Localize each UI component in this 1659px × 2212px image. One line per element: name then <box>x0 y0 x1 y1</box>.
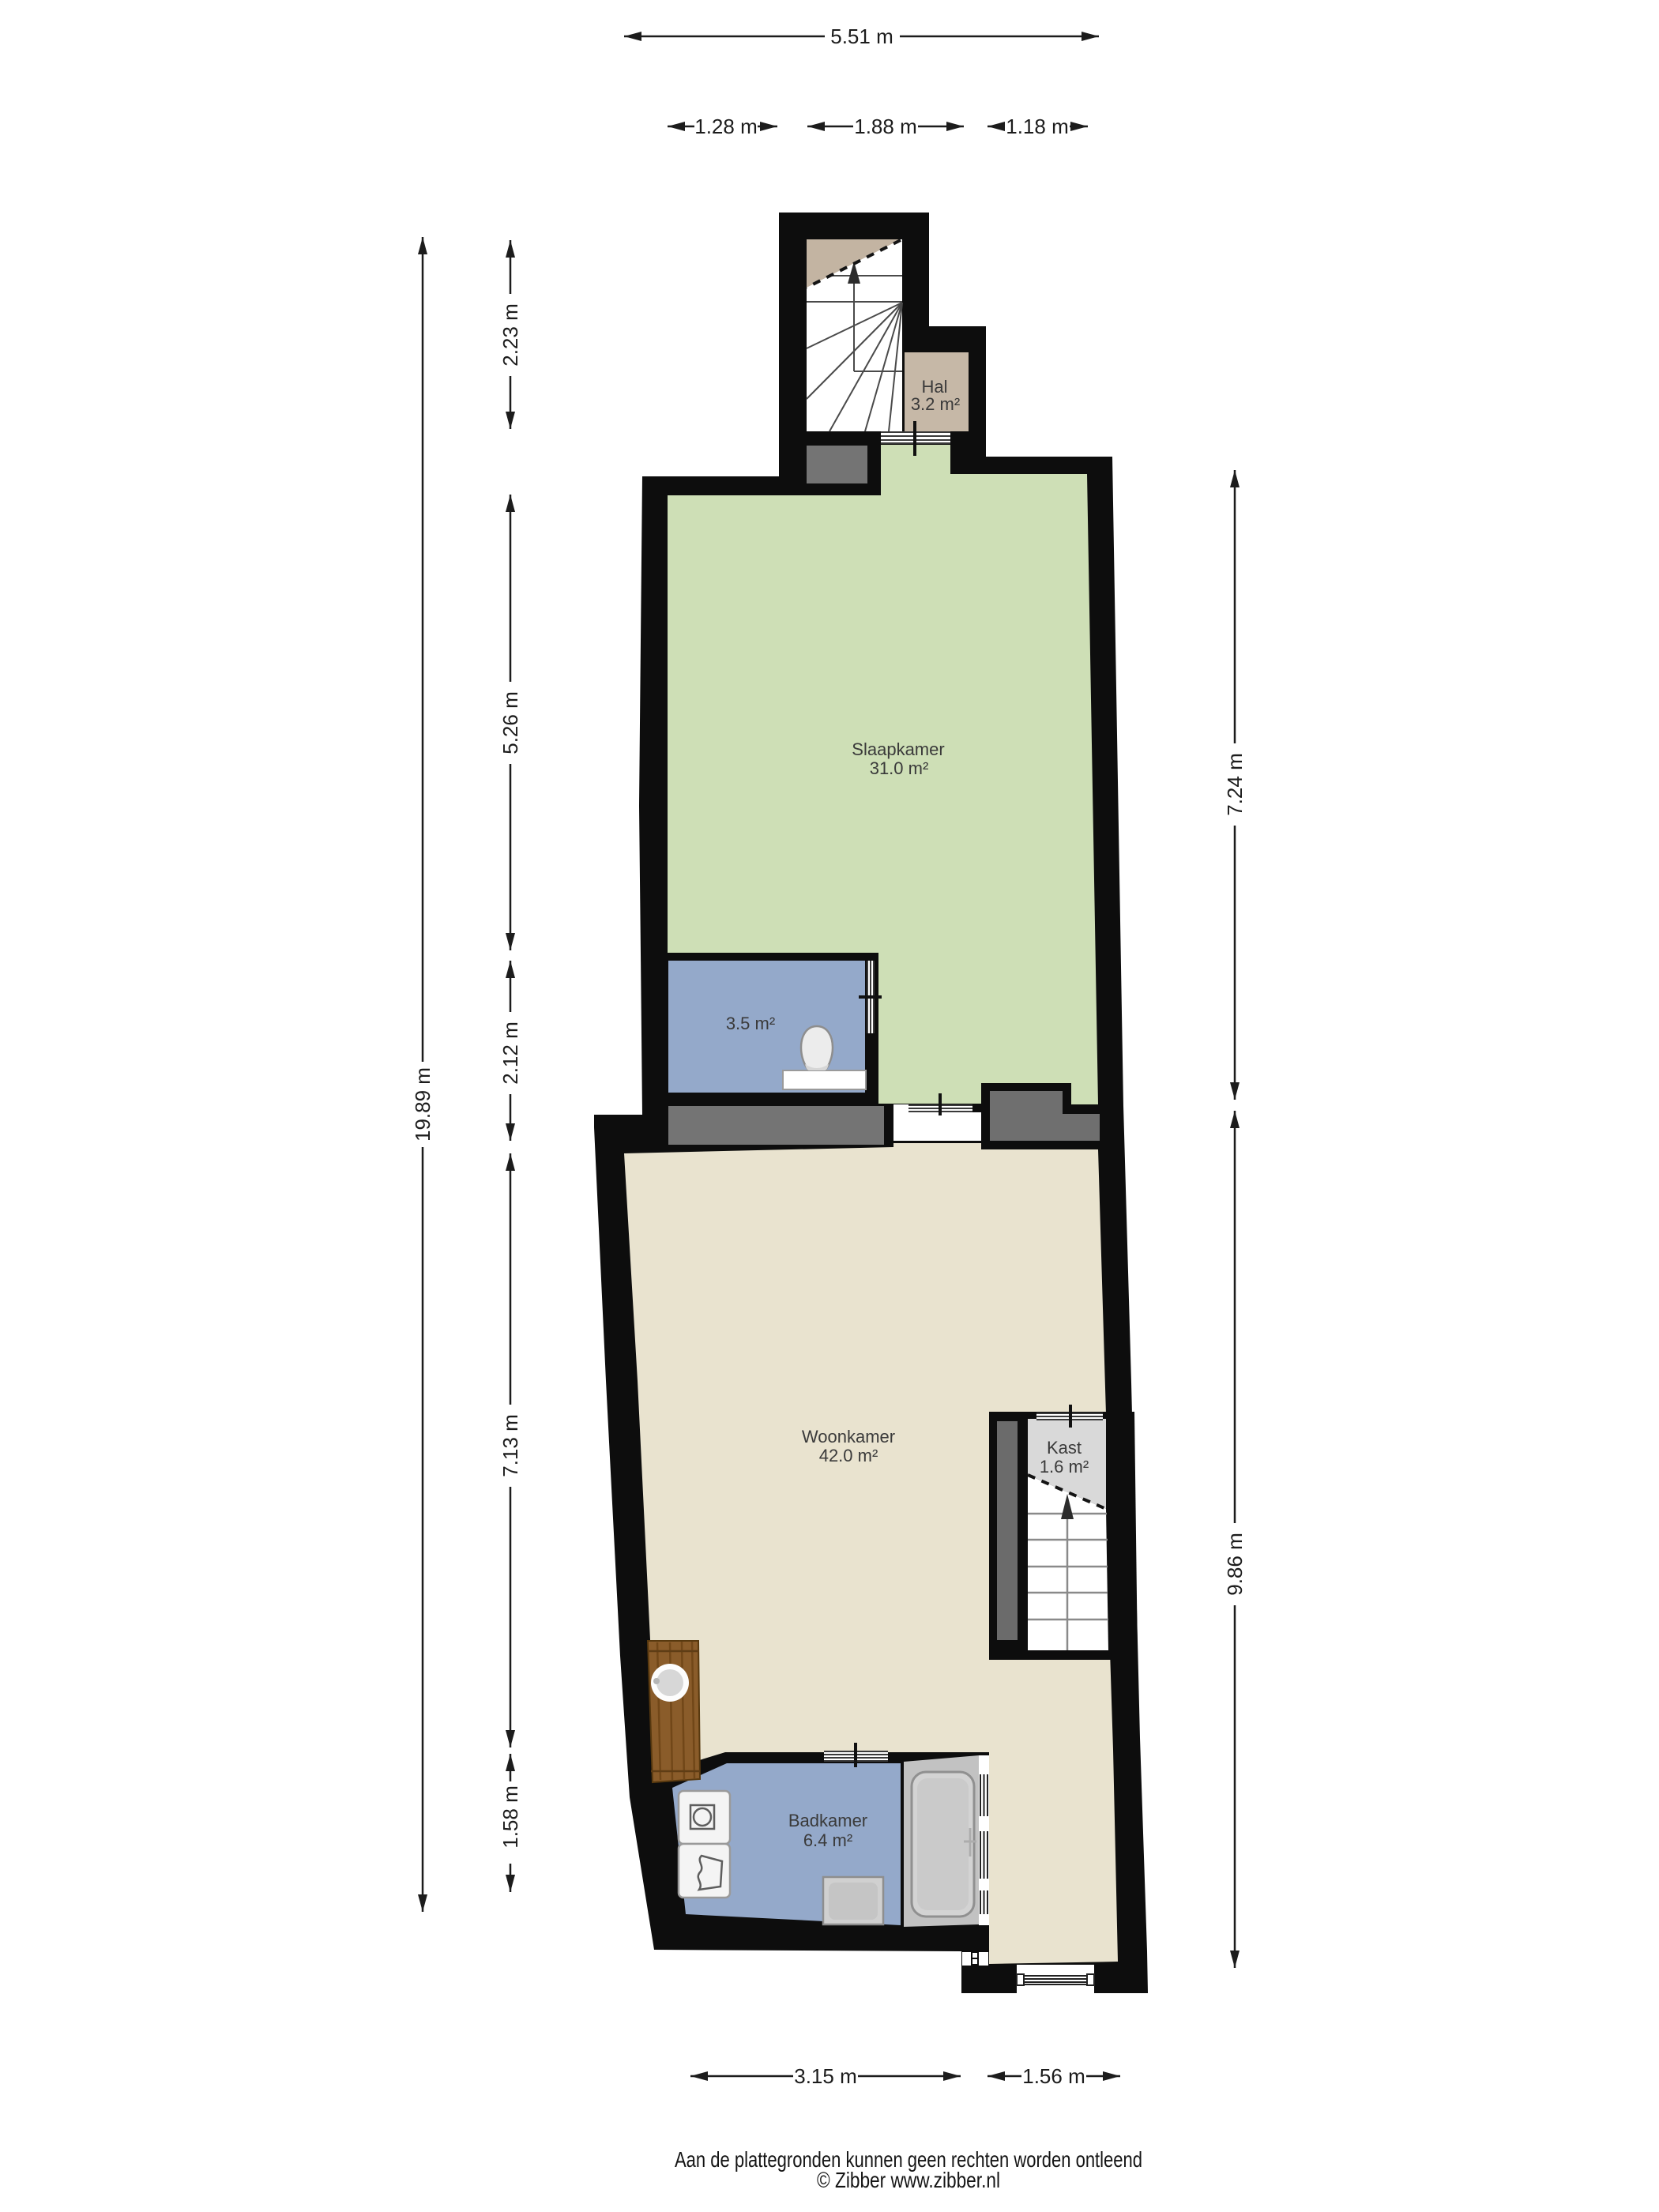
svg-text:1.18 m: 1.18 m <box>1006 115 1069 138</box>
svg-text:Kast: Kast <box>1047 1438 1082 1458</box>
svg-text:Badkamer: Badkamer <box>788 1811 867 1830</box>
svg-text:3.5 m²: 3.5 m² <box>726 1014 775 1033</box>
svg-text:1.58 m: 1.58 m <box>498 1785 522 1849</box>
svg-text:3.2 m²: 3.2 m² <box>911 394 960 414</box>
svg-text:9.86 m: 9.86 m <box>1223 1533 1247 1596</box>
svg-text:7.24 m: 7.24 m <box>1223 753 1247 816</box>
svg-text:Slaapkamer: Slaapkamer <box>852 739 944 759</box>
svg-text:7.13 m: 7.13 m <box>498 1414 522 1477</box>
svg-text:1.56 m: 1.56 m <box>1022 2064 1085 2088</box>
svg-text:3.15 m: 3.15 m <box>794 2064 857 2088</box>
svg-text:© Zibber www.zibber.nl: © Zibber www.zibber.nl <box>817 2168 1000 2192</box>
svg-text:1.6 m²: 1.6 m² <box>1040 1457 1089 1477</box>
svg-text:1.88 m: 1.88 m <box>854 115 917 138</box>
svg-text:1.28 m: 1.28 m <box>694 115 758 138</box>
svg-text:6.4 m²: 6.4 m² <box>803 1830 852 1850</box>
svg-text:Woonkamer: Woonkamer <box>802 1427 895 1446</box>
svg-text:19.89 m: 19.89 m <box>411 1067 434 1142</box>
svg-text:5.26 m: 5.26 m <box>498 691 522 754</box>
svg-text:2.12 m: 2.12 m <box>498 1021 522 1085</box>
svg-text:31.0 m²: 31.0 m² <box>870 758 929 778</box>
svg-text:5.51 m: 5.51 m <box>830 24 893 48</box>
svg-text:2.23 m: 2.23 m <box>498 303 522 367</box>
svg-text:42.0 m²: 42.0 m² <box>819 1446 878 1465</box>
